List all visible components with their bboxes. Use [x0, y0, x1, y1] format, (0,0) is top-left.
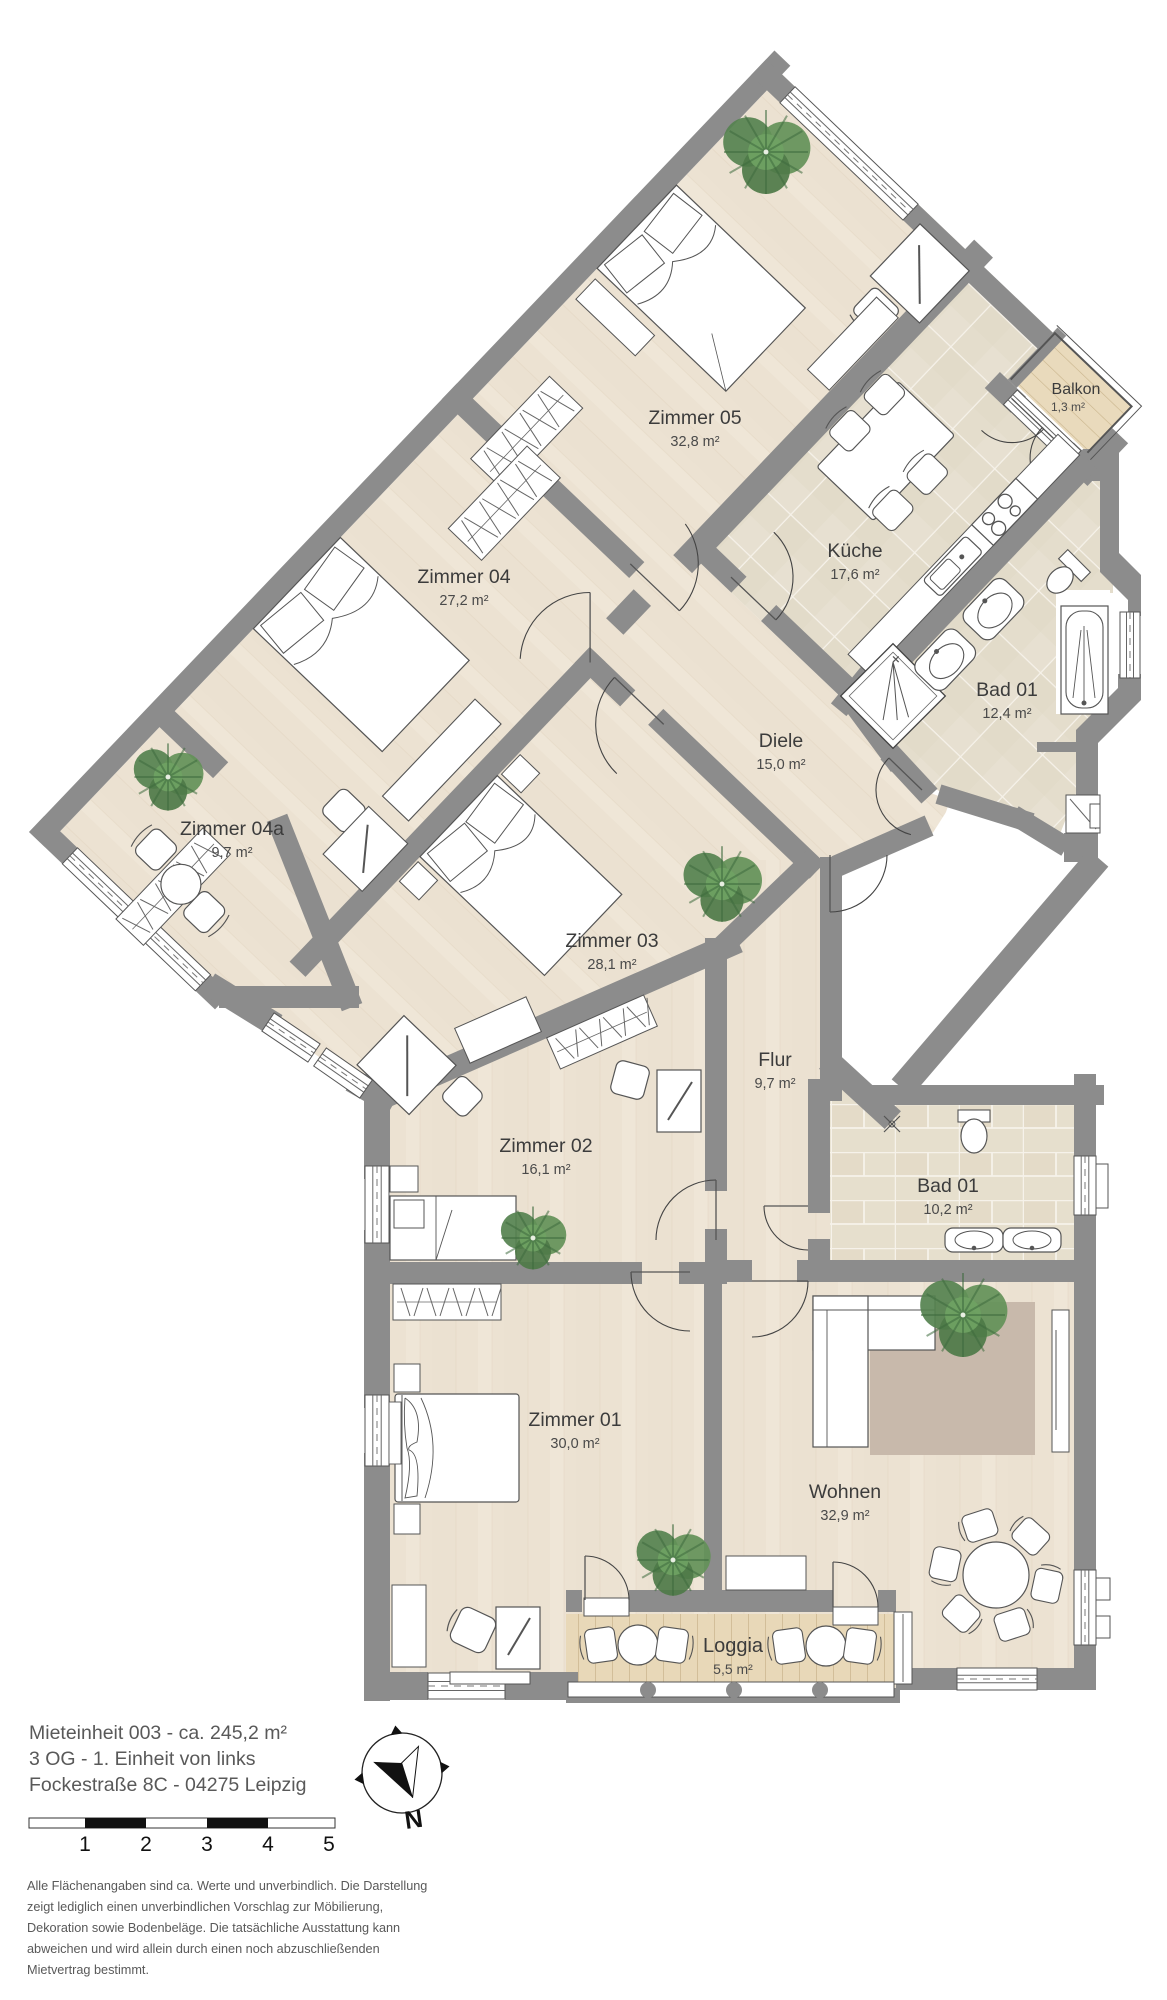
svg-text:Bad 01: Bad 01: [976, 679, 1038, 701]
svg-text:abweichen und wird allein durc: abweichen und wird allein durch einen no…: [27, 1942, 380, 1956]
svg-text:16,1 m²: 16,1 m²: [521, 1162, 570, 1178]
svg-text:Küche: Küche: [827, 540, 882, 562]
svg-text:9,7 m²: 9,7 m²: [754, 1076, 795, 1092]
svg-text:Diele: Diele: [759, 730, 803, 752]
svg-text:Wohnen: Wohnen: [809, 1481, 881, 1503]
svg-text:Zimmer 04a: Zimmer 04a: [180, 818, 284, 840]
svg-text:Flur: Flur: [758, 1049, 792, 1071]
svg-text:10,2 m²: 10,2 m²: [923, 1202, 972, 1218]
svg-text:15,0 m²: 15,0 m²: [756, 757, 805, 773]
svg-text:Mieteinheit 003 - ca. 245,2 m²: Mieteinheit 003 - ca. 245,2 m²: [29, 1722, 287, 1744]
svg-text:3: 3: [201, 1833, 213, 1856]
svg-text:Bad 01: Bad 01: [917, 1175, 979, 1197]
svg-text:Zimmer 04: Zimmer 04: [417, 566, 510, 588]
svg-text:27,2 m²: 27,2 m²: [439, 593, 488, 609]
svg-text:28,1 m²: 28,1 m²: [587, 957, 636, 973]
svg-text:12,4 m²: 12,4 m²: [982, 706, 1031, 722]
svg-text:1,3 m²: 1,3 m²: [1051, 400, 1085, 414]
svg-text:Zimmer 02: Zimmer 02: [499, 1135, 592, 1157]
svg-text:17,6 m²: 17,6 m²: [830, 567, 879, 583]
svg-text:4: 4: [262, 1833, 274, 1856]
svg-text:5,5 m²: 5,5 m²: [713, 1661, 753, 1677]
svg-text:Mietvertrag bestimmt.: Mietvertrag bestimmt.: [27, 1963, 149, 1977]
svg-text:Zimmer 05: Zimmer 05: [648, 407, 741, 429]
svg-text:zeigt lediglich einen unverbin: zeigt lediglich einen unverbindlichen Vo…: [27, 1900, 383, 1914]
svg-text:Fockestraße 8C - 04275 Leipzig: Fockestraße 8C - 04275 Leipzig: [29, 1774, 306, 1796]
svg-text:Balkon: Balkon: [1052, 381, 1101, 398]
svg-text:32,9 m²: 32,9 m²: [820, 1508, 869, 1524]
svg-text:Loggia: Loggia: [703, 1635, 764, 1657]
svg-text:32,8 m²: 32,8 m²: [670, 434, 719, 450]
svg-text:5: 5: [323, 1833, 335, 1856]
svg-text:1: 1: [79, 1833, 91, 1856]
svg-text:Alle Flächenangaben sind ca. W: Alle Flächenangaben sind ca. Werte und u…: [27, 1879, 427, 1893]
svg-text:9,7 m²: 9,7 m²: [211, 845, 252, 861]
svg-text:N: N: [403, 1805, 425, 1835]
svg-text:2: 2: [140, 1833, 152, 1856]
svg-text:Zimmer 01: Zimmer 01: [528, 1409, 621, 1431]
svg-text:30,0 m²: 30,0 m²: [550, 1436, 599, 1452]
svg-text:Zimmer 03: Zimmer 03: [565, 930, 658, 952]
svg-text:3 OG - 1. Einheit von links: 3 OG - 1. Einheit von links: [29, 1748, 256, 1770]
svg-text:Dekoration sowie Bodenbeläge.: Dekoration sowie Bodenbeläge. Die tatsäc…: [27, 1921, 400, 1935]
